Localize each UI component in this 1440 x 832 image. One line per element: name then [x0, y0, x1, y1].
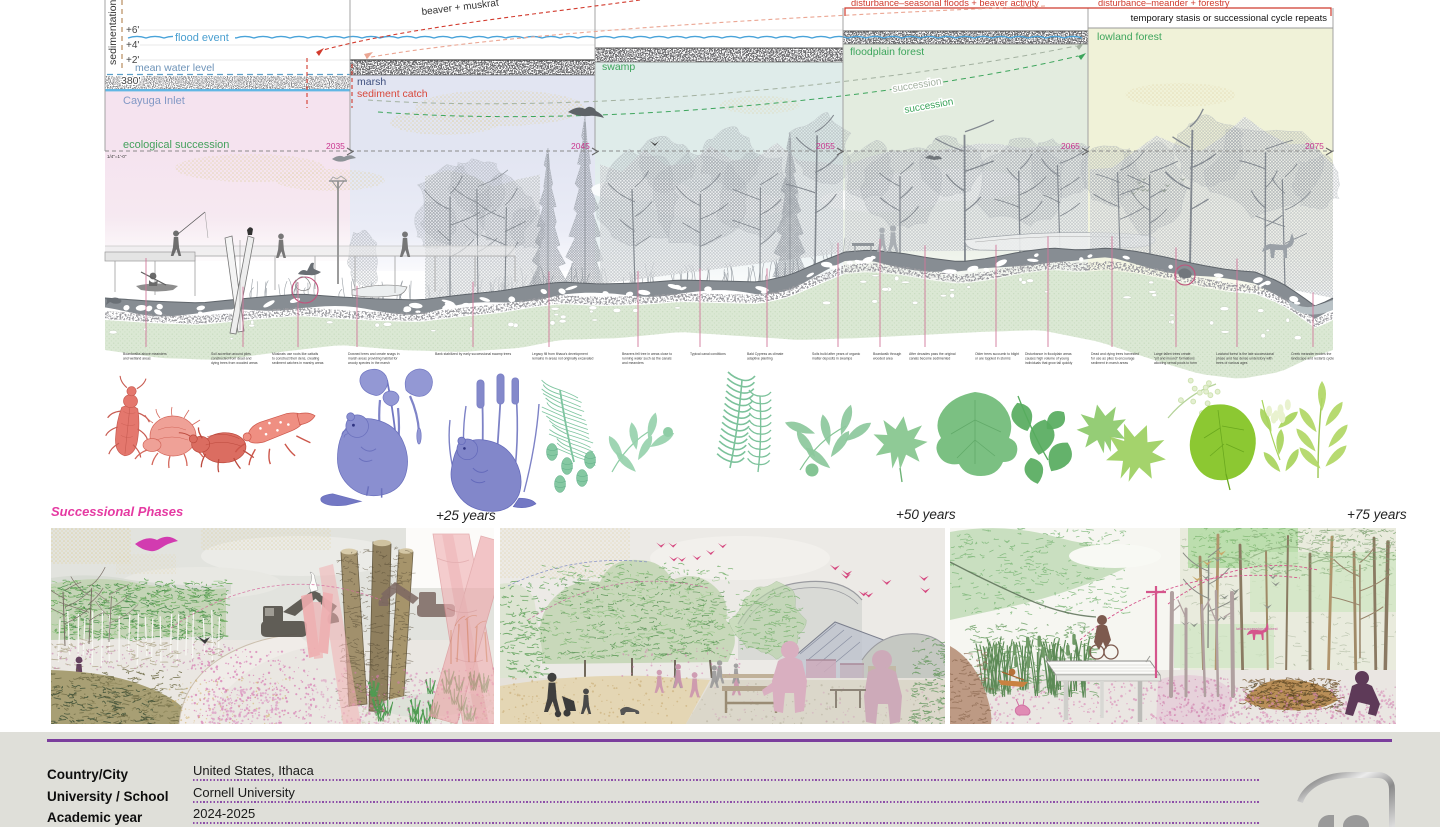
svg-text:Disturbance in floodplain area: Disturbance in floodplain areas — [1025, 352, 1072, 356]
svg-text:2045: 2045 — [571, 141, 590, 151]
svg-text:for use as piles to encourage: for use as piles to encourage — [1091, 356, 1135, 360]
svg-text:380': 380' — [121, 75, 141, 87]
svg-text:and meanders: and meanders — [622, 361, 644, 365]
svg-text:Typical canal conditions: Typical canal conditions — [690, 352, 726, 356]
svg-text:causes high volume of young: causes high volume of young — [1025, 356, 1069, 360]
svg-text:individuals that grow tall qui: individuals that grow tall quickly — [1025, 361, 1073, 365]
svg-text:sediment in marsh areas: sediment in marsh areas — [1091, 361, 1128, 365]
svg-text:+4': +4' — [126, 40, 139, 51]
svg-text:Dead and dying trees harvested: Dead and dying trees harvested — [1091, 352, 1139, 356]
svg-text:Downed trees and create snags: Downed trees and create snags in — [348, 352, 400, 356]
svg-text:dying trees from wooded areas: dying trees from wooded areas — [211, 361, 258, 365]
svg-text:Cayuga Inlet: Cayuga Inlet — [123, 95, 185, 107]
svg-text:ecological succession: ecological succession — [123, 139, 229, 151]
svg-text:2075: 2075 — [1305, 141, 1324, 151]
svg-text:lowland forest: lowland forest — [1097, 31, 1162, 43]
svg-text:marsh: marsh — [357, 76, 386, 88]
svg-text:Large fallen trees create: Large fallen trees create — [1154, 352, 1191, 356]
svg-text:Boardwalks above meanders: Boardwalks above meanders — [123, 352, 167, 356]
svg-text:landscape and restarts cycle: landscape and restarts cycle — [1291, 356, 1334, 360]
svg-text:flood event: flood event — [175, 32, 229, 44]
svg-text:temporary stasis or succession: temporary stasis or successional cycle r… — [1131, 13, 1328, 24]
svg-text:trees of various ages: trees of various ages — [1216, 361, 1248, 365]
svg-text:to construct their dens, creat: to construct their dens, creating — [272, 356, 319, 360]
svg-text:sediment catches in marshy are: sediment catches in marshy areas — [272, 361, 324, 365]
svg-text:1/4"=1'-0": 1/4"=1'-0" — [107, 154, 127, 159]
svg-text:and wetland areas: and wetland areas — [123, 356, 151, 360]
svg-text:+6': +6' — [126, 25, 139, 36]
svg-text:Soils build after years of org: Soils build after years of organic — [812, 352, 861, 356]
svg-text:Older trees succumb to blight: Older trees succumb to blight — [975, 352, 1019, 356]
svg-text:disturbance–meander + forestry: disturbance–meander + forestry — [1098, 0, 1230, 8]
svg-text:Soil accretion around piles: Soil accretion around piles — [211, 352, 251, 356]
svg-text:late successional forest: late successional forest — [1236, 626, 1278, 631]
svg-text:Beavers fell tree in areas clo: Beavers fell tree in areas close to — [622, 352, 672, 356]
svg-text:Muskrats use roots like cattai: Muskrats use roots like cattails — [272, 352, 318, 356]
svg-text:woody species in the marsh: woody species in the marsh — [348, 361, 390, 365]
svg-text:matter deposits in swamps: matter deposits in swamps — [812, 356, 852, 360]
svg-text:beaver + muskrat: beaver + muskrat — [421, 0, 500, 18]
svg-text:marsh areas providing habitat: marsh areas providing habitat for — [348, 356, 398, 360]
svg-text:2065: 2065 — [1061, 141, 1080, 151]
svg-text:constructed from dead and: constructed from dead and — [211, 356, 251, 360]
svg-text:Bank stabilized by early succe: Bank stabilized by early successional sw… — [435, 352, 511, 356]
svg-text:floodplain forest: floodplain forest — [850, 46, 924, 58]
svg-text:Legacy fill from Ithaca's deve: Legacy fill from Ithaca's development — [532, 352, 588, 356]
svg-text:remains in areas not originall: remains in areas not originally excavate… — [532, 356, 594, 360]
svg-text:allowing vernal pools to form: allowing vernal pools to form — [1154, 361, 1197, 365]
svg-text:2035: 2035 — [326, 141, 345, 151]
svg-text:After decades pass the origina: After decades pass the original — [909, 352, 956, 356]
svg-text:Bald Cypress as climate: Bald Cypress as climate — [747, 352, 783, 356]
svg-text:sedimentation: sedimentation — [107, 0, 119, 65]
svg-text:"pit and mound" formations: "pit and mound" formations — [1154, 356, 1195, 360]
svg-text:mean water level: mean water level — [135, 62, 214, 74]
svg-text:Lowland forest is the late suc: Lowland forest is the late successional — [1216, 352, 1274, 356]
svg-text:adaptive planting: adaptive planting — [747, 356, 773, 360]
svg-text:disturbance–seasonal floods +: disturbance–seasonal floods + beaver act… — [851, 0, 1039, 8]
svg-text:Creek meander erodes the: Creek meander erodes the — [1291, 352, 1331, 356]
svg-text:phase and has dense understory: phase and has dense understory with — [1216, 356, 1272, 360]
svg-text:swamp: swamp — [602, 61, 635, 73]
svg-text:Boardwalk through: Boardwalk through — [873, 352, 901, 356]
svg-text:wooded area: wooded area — [873, 356, 893, 360]
svg-text:or are toppled in storms: or are toppled in storms — [975, 356, 1011, 360]
svg-text:+2': +2' — [126, 55, 139, 66]
svg-text:2055: 2055 — [816, 141, 835, 151]
svg-text:running water such as the cana: running water such as the canals — [622, 356, 672, 360]
svg-text:sediment catch: sediment catch — [357, 88, 428, 100]
svg-text:canals become sedimented: canals become sedimented — [909, 356, 950, 360]
